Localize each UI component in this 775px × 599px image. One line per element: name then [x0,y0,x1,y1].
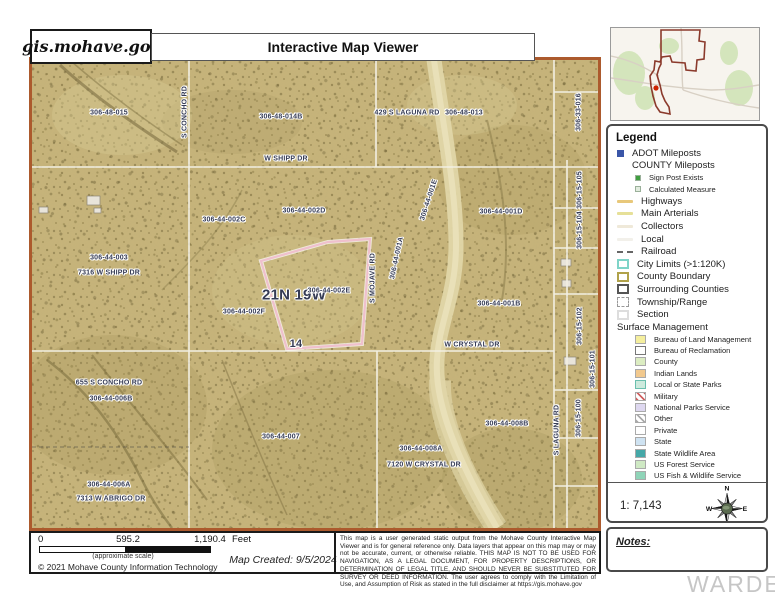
legend-label: State Wildlife Area [654,449,715,458]
legend-item: US Fish & Wildlife Service [608,470,766,481]
legend-swatch-icon [617,150,624,157]
scale-ratio: 1: 7,143 [620,500,662,512]
legend-swatch-icon [617,259,629,269]
legend-item: US Forest Service [608,459,766,470]
legend-item: Military [608,390,766,401]
overview-map [610,27,760,121]
legend-label: Local or State Parks [654,380,722,389]
map-scale-row: 1: 7,143 N S W E [608,482,766,523]
legend-swatch-icon [617,251,633,253]
disclaimer-text: This map is a user generated static outp… [334,533,600,572]
legend-swatch-icon [635,335,646,344]
wardex-watermark: WARDEX [687,571,775,598]
legend-swatch-icon [635,460,646,469]
scale-mid: 595.2 [116,534,140,545]
legend-swatch-icon [617,200,633,203]
legend-label: Military [654,392,678,401]
legend-item: Bureau of Land Management [608,334,766,345]
legend-label: US Forest Service [654,460,715,469]
legend-label: Indian Lands [654,369,697,378]
legend-swatch-icon [617,284,629,294]
legend-title: Legend [608,130,766,147]
legend-item: Local [608,233,766,246]
approximate-scale-note: (approximate scale) [92,553,153,560]
legend-item: Private [608,425,766,436]
svg-text:W: W [706,506,713,513]
legend-item: Local or State Parks [608,379,766,390]
legend-item: ADOT Mileposts [608,147,766,160]
notes-label: Notes: [616,536,650,548]
svg-text:E: E [743,506,748,513]
site-logo: gis.mohave.gov [30,29,152,64]
legend-label: Calculated Measure [649,185,716,194]
legend-label: Surrounding Counties [637,284,729,295]
map-created-date: Map Created: 9/5/2024 [229,554,336,566]
legend-label: Section [637,309,669,320]
legend-swatch-icon [635,414,646,423]
legend-label: Railroad [641,246,676,257]
legend-swatch-icon [617,310,629,320]
overview-map-graphic [611,28,759,120]
copyright-text: © 2021 Mohave County Information Technol… [38,562,218,572]
legend-item: County Boundary [608,271,766,284]
legend-label: COUNTY Mileposts [632,160,715,171]
legend-label: Highways [641,196,682,207]
legend-item: Highways [608,195,766,208]
legend-label: City Limits (>1:120K) [637,259,725,270]
legend-swatch-icon [617,272,629,282]
legend-label: Collectors [641,221,683,232]
scale-bar-section: 0 595.2 1,190.4 Feet (approximate scale)… [31,533,334,572]
legend-swatch-icon [617,238,633,241]
location-marker [653,85,658,90]
legend-swatch-icon [635,403,646,412]
legend-label: Local [641,234,664,245]
legend-item: Railroad [608,245,766,258]
page-title-box: Interactive Map Viewer [151,33,535,61]
site-logo-text: gis.mohave.gov [22,37,160,56]
surface-management-title: Surface Management [608,321,766,334]
legend-label: County [654,357,678,366]
legend-item: County [608,356,766,367]
legend-item: State [608,436,766,447]
legend-panel: Legend ADOT MilepostsCOUNTY MilepostsSig… [606,124,768,523]
legend-label: Bureau of Land Management [654,335,751,344]
legend-label: Private [654,426,677,435]
legend-label: Other [654,414,673,423]
legend-swatch-icon [635,471,646,480]
legend-label: County Boundary [637,271,710,282]
compass-rose-icon: N S W E [702,483,752,523]
notes-panel: Notes: [606,527,768,572]
legend-label: Sign Post Exists [649,173,703,182]
legend-item: Main Arterials [608,208,766,221]
legend-swatch-icon [635,186,641,192]
legend-label: State [654,437,672,446]
legend-label: Bureau of Reclamation [654,346,730,355]
legend-swatch-icon [635,380,646,389]
scale-bar-panel: 0 595.2 1,190.4 Feet (approximate scale)… [29,531,601,574]
legend-item: Sign Post Exists [608,172,766,183]
scale-start: 0 [38,534,43,545]
legend-item: Calculated Measure [608,184,766,195]
legend-item: National Parks Service [608,402,766,413]
legend-swatch-icon [617,297,629,307]
scale-end: 1,190.4 [194,534,226,545]
legend-swatch-icon [635,175,641,181]
scale-unit: Feet [232,534,251,545]
page-title: Interactive Map Viewer [268,39,419,55]
legend-item: State Wildlife Area [608,447,766,458]
legend-swatch-icon [635,357,646,366]
legend-item: City Limits (>1:120K) [608,258,766,271]
legend-item: Indian Lands [608,368,766,379]
svg-text:N: N [725,485,730,492]
scale-bar [39,546,211,553]
legend-rows: ADOT MilepostsCOUNTY MilepostsSign Post … [608,147,766,482]
legend-swatch-icon [617,225,633,228]
legend-swatch-icon [635,346,646,355]
legend-item: Other [608,413,766,424]
legend-label: Township/Range [637,297,707,308]
legend-item: Collectors [608,220,766,233]
legend-swatch-icon [635,437,646,446]
legend-item: Township/Range [608,296,766,309]
legend-label: US Fish & Wildlife Service [654,471,741,480]
legend-item: COUNTY Mileposts [608,160,766,173]
legend-swatch-icon [635,369,646,378]
legend-swatch-icon [635,392,646,401]
legend-label: Main Arterials [641,208,699,219]
legend-swatch-icon [635,449,646,458]
legend-item: Section [608,308,766,321]
legend-label: ADOT Mileposts [632,148,701,159]
legend-swatch-icon [617,212,633,215]
legend-item: Bureau of Reclamation [608,345,766,356]
legend-swatch-icon [635,426,646,435]
aerial-map [32,60,598,528]
legend-item: Surrounding Counties [608,283,766,296]
legend-label: National Parks Service [654,403,730,412]
map-viewport[interactable]: 306-48-015306-48-014B429 S LAGUNA RD306-… [29,57,601,531]
